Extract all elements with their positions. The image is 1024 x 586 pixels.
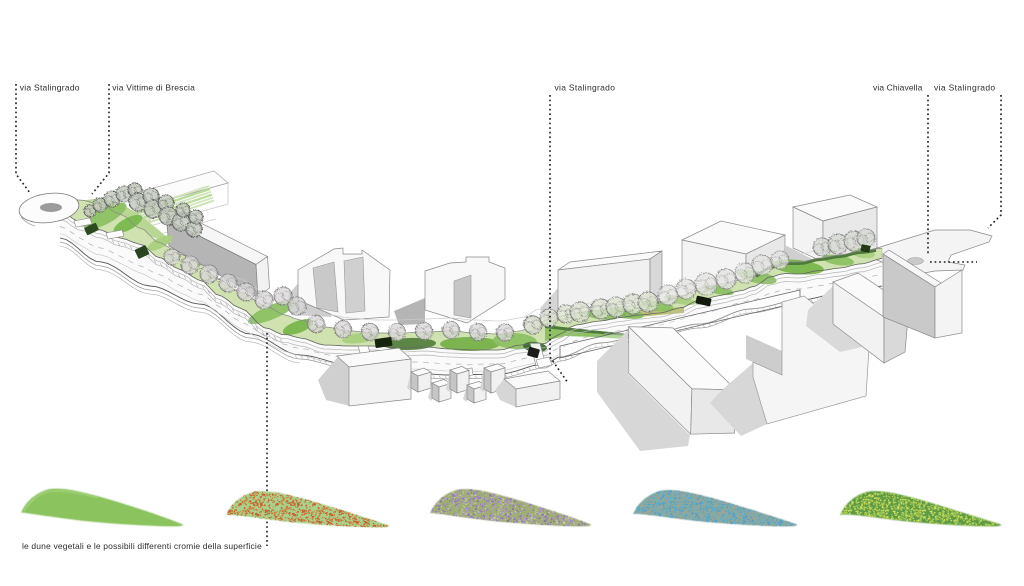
svg-text:via Stalingrado: via Stalingrado [555, 83, 616, 93]
svg-text:via Chiavella: via Chiavella [873, 83, 923, 93]
svg-text:le dune vegetali e le possibil: le dune vegetali e le possibili differen… [22, 541, 262, 551]
svg-text:via Stalingrado: via Stalingrado [934, 83, 995, 93]
svg-text:via Vittime di Brescia: via Vittime di Brescia [112, 83, 195, 93]
svg-text:via Stalingrado: via Stalingrado [20, 83, 80, 93]
